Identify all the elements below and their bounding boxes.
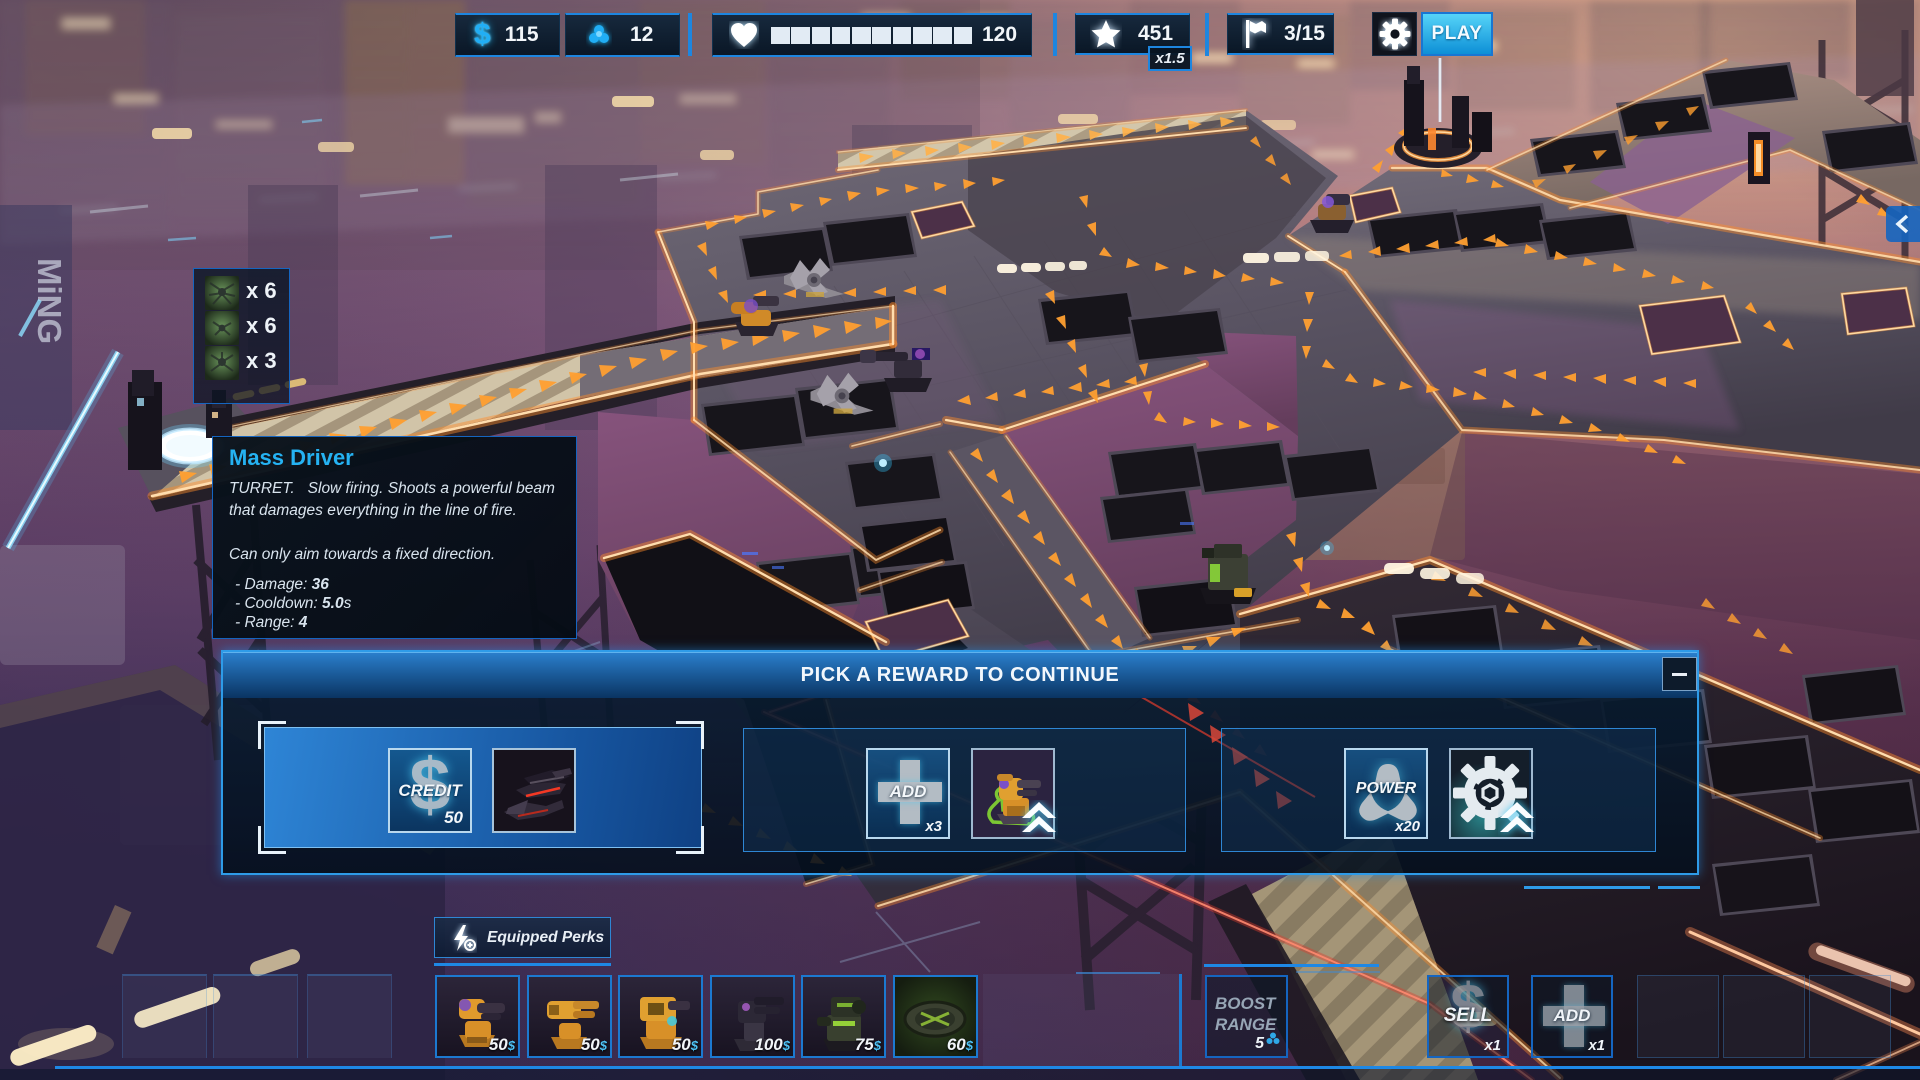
svg-text:MiNG: MiNG [31,258,68,344]
